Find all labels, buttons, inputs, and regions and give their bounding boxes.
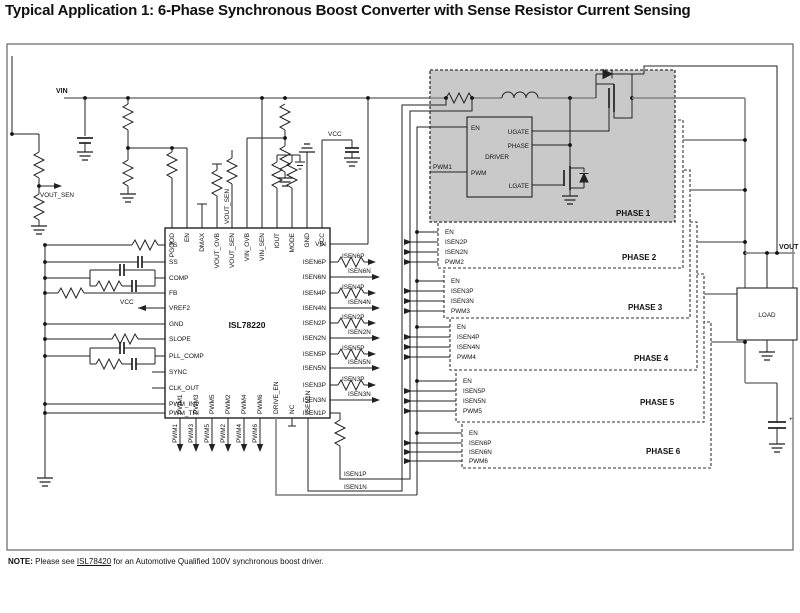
pin-pwm2: PWM2 <box>225 394 232 414</box>
pin-pwm4: PWM4 <box>241 394 248 414</box>
vref2-vcc-label: VCC <box>120 299 134 306</box>
net-arrow-icon <box>54 183 62 189</box>
note-pre: Please see <box>33 557 77 566</box>
pin-pll-comp: PLL_COMP <box>169 353 204 360</box>
pin-pgood: PGOOD <box>169 233 176 258</box>
pin-pwm5: PWM5 <box>209 394 216 414</box>
pin-isen4n: ISEN4N <box>303 305 327 312</box>
net-isen3p: ISEN3P <box>342 376 364 383</box>
resistor-icon <box>96 281 122 291</box>
phase4-pin-pwm4: PWM4 <box>457 354 476 361</box>
pin-en: EN <box>184 233 191 242</box>
net-arrow-icon <box>138 305 146 311</box>
net-pwm5: PWM5 <box>204 424 211 443</box>
phase5-pin-isen5p: ISEN5P <box>463 388 485 395</box>
phase3-title: PHASE 3 <box>628 303 663 312</box>
phase2-pin-isen2n: ISEN2N <box>445 249 468 256</box>
note-label: NOTE: <box>8 557 33 566</box>
driver-pin-phase: PHASE <box>508 143 529 150</box>
phase6-pin-en: EN <box>469 430 478 437</box>
resistor-icon <box>96 359 122 369</box>
pin-iout: IOUT <box>274 233 281 249</box>
pin-pwm1: PWM1 <box>177 394 184 414</box>
ground-icon <box>299 144 315 152</box>
net-isen1p: ISEN1P <box>344 471 366 478</box>
phase5-pin-isen5n: ISEN5N <box>463 398 486 405</box>
ic-isl78220: ISL78220 FS SS COMP FB VREF2 GND SLOPE P… <box>165 228 330 418</box>
footnote: NOTE: Please see ISL78420 for an Automot… <box>8 557 324 566</box>
phase5-pin-en: EN <box>463 378 472 385</box>
ground-icon <box>77 152 93 160</box>
phase3-pin-isen3n: ISEN3N <box>451 298 474 305</box>
pin-slope: SLOPE <box>169 336 191 343</box>
resistor-icon <box>272 162 282 188</box>
net-pwm4: PWM4 <box>236 424 243 443</box>
phase1-title: PHASE 1 <box>616 209 651 218</box>
driver-pin-pwm: PWM <box>471 170 486 177</box>
resistor-icon <box>112 334 138 344</box>
phase5-pin-pwm5: PWM5 <box>463 408 482 415</box>
net-isen6p: ISEN6P <box>342 253 364 260</box>
pin-ss: SS <box>169 259 178 266</box>
ic-name: ISL78220 <box>229 320 266 330</box>
left-pin-components: VCC <box>37 240 165 486</box>
phase3-pin-pwm3: PWM3 <box>451 308 470 315</box>
phase2-title: PHASE 2 <box>622 253 657 262</box>
phase6-pin-pwm6: PWM6 <box>469 458 488 465</box>
ground-icon <box>295 162 305 169</box>
isen-signal-outputs: ISEN6P ISEN6N ISEN4P ISEN4N ISEN2P ISEN2… <box>330 98 380 403</box>
net-pwm6: PWM6 <box>252 424 259 443</box>
phase1-block: EN PWM UGATE PHASE LGATE DRIVER PWM1 PHA… <box>430 70 675 223</box>
ground-icon <box>31 226 47 234</box>
ground-icon <box>769 444 785 452</box>
pin-pwm3: PWM3 <box>193 394 200 414</box>
net-isen4p: ISEN4P <box>342 284 364 291</box>
vin-label: VIN <box>56 88 68 95</box>
phase6-title: PHASE 6 <box>646 447 681 456</box>
pin-sync: SYNC <box>169 369 187 376</box>
resistor-icon <box>34 152 44 178</box>
net-isen2n: ISEN2N <box>348 329 371 336</box>
pin-isen4p: ISEN4P <box>303 290 326 297</box>
driver-title: DRIVER <box>485 154 509 161</box>
pin-isen5n: ISEN5N <box>303 365 327 372</box>
phase2-pin-pwm2: PWM2 <box>445 259 464 266</box>
net-isen3n: ISEN3N <box>348 391 371 398</box>
pin-isen3p: ISEN3P <box>303 382 326 389</box>
resistor-icon <box>132 240 158 250</box>
phase2-pin-isen2p: ISEN2P <box>445 239 467 246</box>
pin-vref2: VREF2 <box>169 305 190 312</box>
phase5-title: PHASE 5 <box>640 398 675 407</box>
schematic: VIN VOUT_SEN <box>0 0 800 613</box>
pin-nc: NC <box>289 404 296 414</box>
driver-pin-en: EN <box>471 125 480 132</box>
driver-pin-lgate: LGATE <box>509 183 529 190</box>
pin-isen6p: ISEN6P <box>303 259 326 266</box>
pin-comp: COMP <box>169 275 189 282</box>
phase6-pin-isen6n: ISEN6N <box>469 449 492 456</box>
net-isen2p: ISEN2P <box>342 314 364 321</box>
pin-pwm6: PWM6 <box>257 394 264 414</box>
pin-isen1n: ISEN1N <box>305 390 312 414</box>
driver-pin-ugate: UGATE <box>508 129 529 136</box>
ground-icon <box>37 478 53 486</box>
phase4-pin-isen4p: ISEN4P <box>457 334 479 341</box>
resistor-icon <box>335 420 345 446</box>
phase4-pin-isen4n: ISEN4N <box>457 344 480 351</box>
note-post: for an Automotive Qualified 100V synchro… <box>111 557 324 566</box>
phase2-pin-en: EN <box>445 229 454 236</box>
resistor-icon <box>167 152 177 178</box>
pin-isen5p: ISEN5P <box>303 351 326 358</box>
phase3-pin-en: EN <box>451 278 460 285</box>
resistor-icon <box>212 170 222 196</box>
pin-gnd-left: GND <box>169 321 184 328</box>
pin-isen6n: ISEN6N <box>303 274 327 281</box>
vout-sen-net-label: VOUT_SEN <box>224 189 231 224</box>
isl78420-link[interactable]: ISL78420 <box>77 557 111 566</box>
vout-label: VOUT <box>779 244 799 251</box>
pin-dmax: DMAX <box>199 232 206 251</box>
ground-icon <box>759 352 775 360</box>
net-isen5n: ISEN5N <box>348 359 371 366</box>
net-isen4n: ISEN4N <box>348 299 371 306</box>
pin-fb: FB <box>169 290 177 297</box>
pin-mode: MODE <box>289 232 296 252</box>
pin-vout-sen: VOUT_SEN <box>229 233 236 268</box>
pin-isen2n: ISEN2N <box>303 335 327 342</box>
resistor-icon <box>58 288 84 298</box>
net-isen6n: ISEN6N <box>348 268 371 275</box>
phase4-title: PHASE 4 <box>634 354 669 363</box>
net-pwm3: PWM3 <box>188 424 195 443</box>
net-isen1n: ISEN1N <box>344 484 367 491</box>
vout-sen-divider-label: VOUT_SEN <box>40 192 74 199</box>
resistor-icon <box>123 104 133 130</box>
phase4-pin-en: EN <box>457 324 466 331</box>
pin-clk-out: CLK_OUT <box>169 385 199 392</box>
pin-vin-ovb: VIN_OVB <box>244 233 251 261</box>
vin-rail: VIN VOUT_SEN <box>56 88 430 228</box>
net-pwm2: PWM2 <box>220 424 227 443</box>
phase6-pin-isen6p: ISEN6P <box>469 440 491 447</box>
pin-isen2p: ISEN2P <box>303 320 326 327</box>
vcc-label: VCC <box>328 131 342 138</box>
cap-plus-label: + <box>789 416 793 423</box>
pin-vin-sen: VIN_SEN <box>259 233 266 261</box>
vout-sense-divider: VOUT_SEN <box>10 56 74 234</box>
pin-drive-en: DRIVE_EN <box>273 381 280 414</box>
resistor-icon <box>287 162 297 188</box>
pin-gnd-top: GND <box>304 233 311 248</box>
resistor-icon <box>280 104 290 130</box>
net-pwm1: PWM1 <box>172 424 179 443</box>
ground-icon <box>120 194 136 202</box>
load-label: LOAD <box>758 312 776 319</box>
resistor-icon <box>227 158 237 184</box>
phase3-pin-isen3p: ISEN3P <box>451 288 473 295</box>
pin-vout-ovb: VOUT_OVB <box>214 233 221 268</box>
net-isen5p: ISEN5P <box>342 345 364 352</box>
phase1-pwm1-label: PWM1 <box>433 164 452 171</box>
pin-vin: VIN <box>315 241 326 248</box>
ground-icon <box>344 158 360 166</box>
